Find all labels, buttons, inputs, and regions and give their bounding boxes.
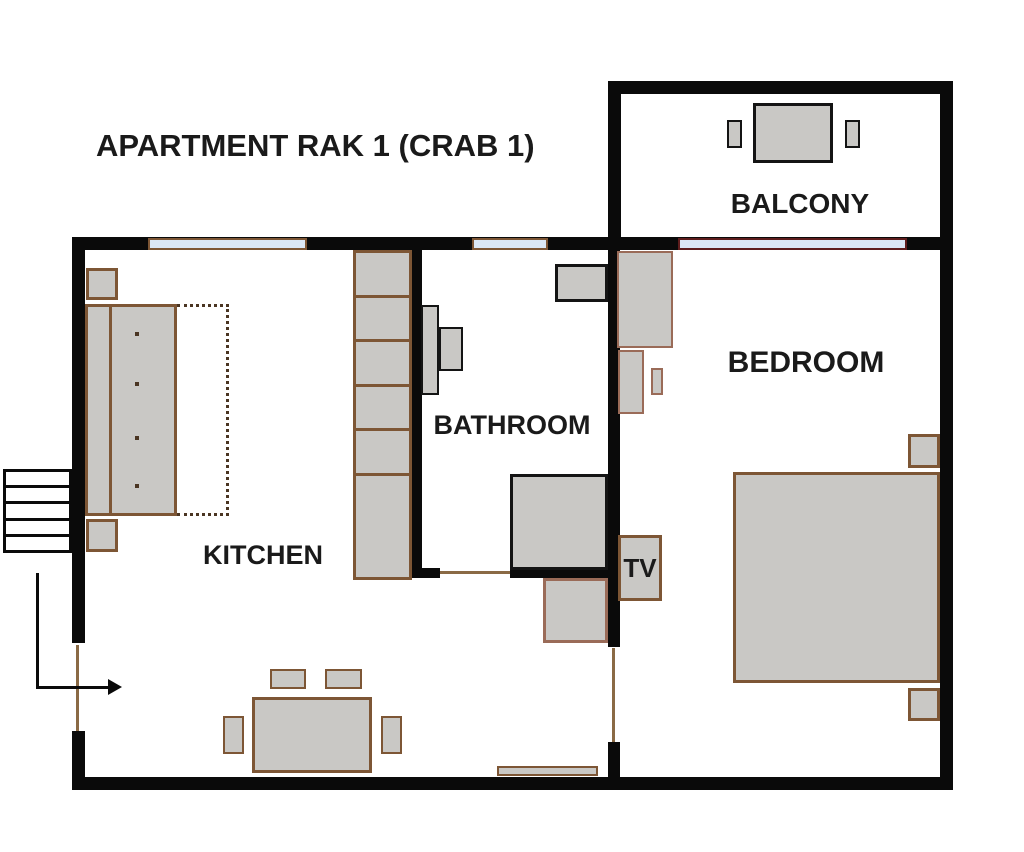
sofa-bed	[85, 304, 177, 516]
sofa-button	[135, 484, 139, 488]
kitchen-label: KITCHEN	[163, 540, 363, 571]
stairs	[3, 469, 72, 553]
wardrobe-tall	[617, 251, 673, 348]
nightstand-bottom	[908, 688, 940, 721]
door-mat	[497, 766, 598, 776]
stair-tread	[6, 504, 69, 520]
dining-chair-top-left	[270, 669, 306, 689]
balcony-table	[753, 103, 833, 163]
bedroom-label: BEDROOM	[706, 346, 906, 380]
kitchen-cabinet	[356, 253, 409, 298]
apartment-bottom-wall	[72, 777, 953, 790]
entry-arrow-icon	[108, 679, 122, 695]
tv-unit: TV	[618, 535, 662, 601]
tv-label: TV	[623, 553, 656, 584]
stair-tread	[6, 537, 69, 550]
bedroom-door	[612, 648, 615, 742]
sofa-button	[135, 436, 139, 440]
plan-title: APARTMENT RAK 1 (CRAB 1)	[96, 128, 535, 164]
dining-chair-left	[223, 716, 244, 754]
floor-plan: APARTMENT RAK 1 (CRAB 1) BALCONY	[0, 0, 1024, 852]
bathroom-bottom-wall-left	[410, 568, 440, 578]
kitchen-cabinet	[356, 431, 409, 476]
balcony-right-wall	[940, 81, 953, 237]
shower	[510, 474, 608, 570]
bathroom-label: BATHROOM	[412, 410, 612, 441]
washing-machine	[543, 578, 608, 643]
dining-chair-right	[381, 716, 402, 754]
kitchen-side-table-bottom	[86, 519, 118, 552]
left-wall-lower	[72, 731, 85, 790]
dining-table	[252, 697, 372, 773]
left-wall-upper	[72, 237, 85, 643]
balcony-top-wall	[608, 81, 953, 94]
bed	[733, 472, 940, 683]
sofa-button	[135, 332, 139, 336]
bedroom-wall-stub	[608, 742, 620, 777]
kitchen-cabinet-column	[353, 250, 412, 580]
kitchen-cabinet	[356, 387, 409, 431]
sofa-backrest-divider	[109, 307, 112, 513]
stair-tread	[6, 472, 69, 488]
bathroom-window	[472, 238, 548, 250]
sofa-pullout-outline	[177, 304, 229, 516]
sofa-button	[135, 382, 139, 386]
kitchen-cabinet	[356, 298, 409, 342]
wardrobe-small	[618, 350, 644, 414]
bathroom-door	[440, 571, 510, 574]
kitchen-cabinet	[356, 342, 409, 387]
balcony-chair-left	[727, 120, 742, 148]
entry-arrow-line-vertical	[36, 573, 39, 688]
balcony-left-wall	[608, 81, 621, 250]
entry-arrow-line-horizontal	[36, 686, 110, 689]
balcony-chair-right	[845, 120, 860, 148]
kitchen-cabinet	[356, 476, 409, 577]
bathroom-shelf-unit	[555, 264, 608, 302]
stair-tread	[6, 521, 69, 537]
dining-chair-top-right	[325, 669, 362, 689]
nightstand-top	[908, 434, 940, 468]
right-wall	[940, 237, 953, 790]
balcony-door-window	[678, 238, 907, 250]
sink-basin	[439, 327, 463, 371]
kitchen-window	[148, 238, 307, 250]
balcony-label: BALCONY	[700, 188, 900, 220]
kitchen-side-table-top	[86, 268, 118, 300]
wardrobe-knob	[651, 368, 663, 395]
sink-vanity	[421, 305, 439, 395]
stair-tread	[6, 488, 69, 504]
